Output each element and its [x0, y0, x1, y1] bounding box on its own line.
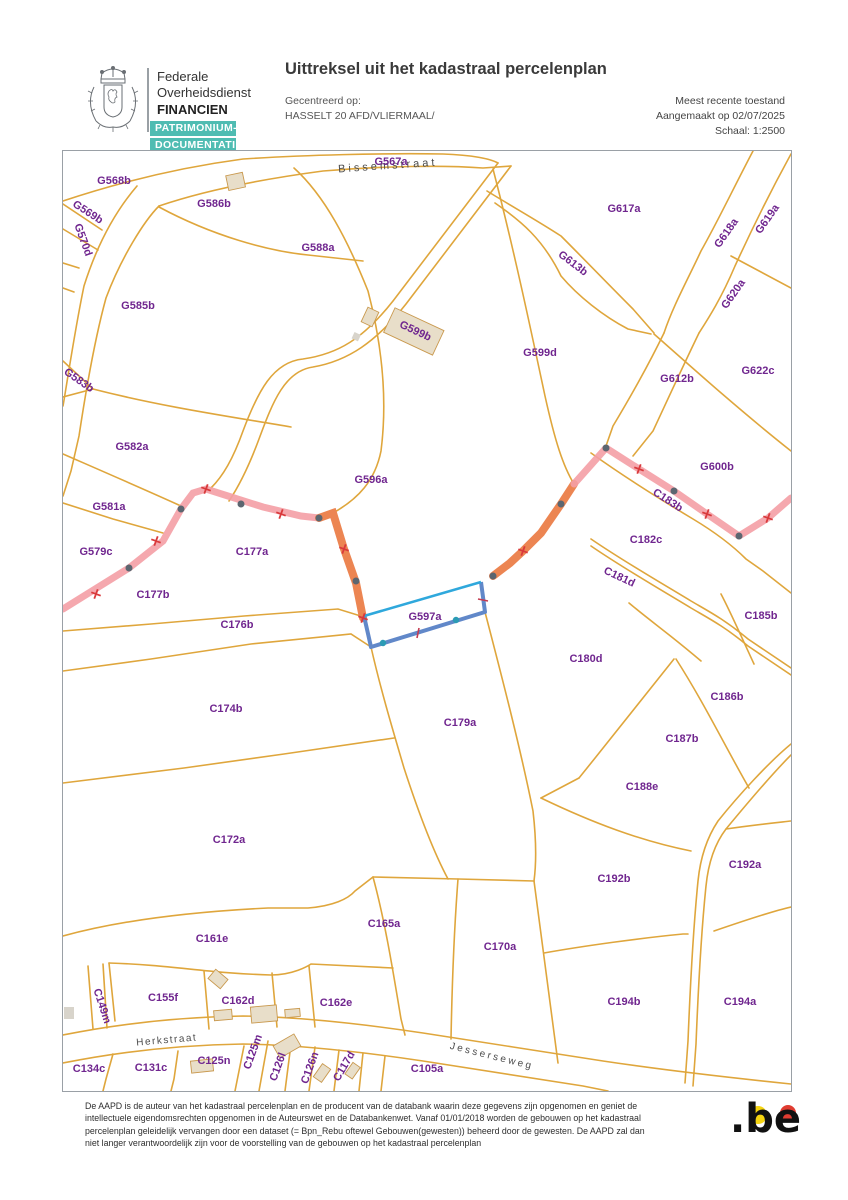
- created-date: Aangemaakt op 02/07/2025: [656, 109, 785, 124]
- badge-line1: PATRIMONIUM-: [150, 121, 236, 136]
- parcel-label-C125m: C125m: [241, 1033, 265, 1071]
- parcel-label-C177a: C177a: [236, 546, 269, 558]
- parcel-label-C176b: C176b: [220, 619, 253, 631]
- org-line2: Overheidsdienst: [157, 85, 251, 101]
- centered-on-label: Gecentreerd op:: [285, 94, 435, 109]
- parcel-label-G582a: G582a: [115, 441, 149, 453]
- parcel-label-C155f: C155f: [148, 992, 178, 1004]
- parcel-label-C172a: C172a: [213, 834, 246, 846]
- parcel-label-C165a: C165a: [368, 918, 401, 930]
- parcel-label-G579c: G579c: [79, 546, 112, 558]
- parcel-label-C185b: C185b: [744, 610, 777, 622]
- status-text: Meest recente toestand: [656, 94, 785, 109]
- cadastral-map[interactable]: BissemstraatHerkstraatJesserseweg G567aG…: [63, 151, 791, 1091]
- parcel-label-G568b: G568b: [97, 175, 131, 187]
- page-title: Uittreksel uit het kadastraal percelenpl…: [285, 60, 607, 79]
- org-line3: FINANCIEN: [157, 102, 251, 118]
- parcel-label-G570d: G570d: [71, 222, 94, 258]
- parcel-label-G600b: G600b: [700, 461, 734, 473]
- dot-be-logo: .be: [728, 1092, 808, 1148]
- centered-on-value: HASSELT 20 AFD/VLIERMAAL/: [285, 109, 435, 124]
- parcel-label-C174b: C174b: [209, 703, 242, 715]
- parcel-label-C177b: C177b: [136, 589, 169, 601]
- municipal-boundary: [63, 448, 791, 618]
- parcel-label-G597a[interactable]: G597a: [408, 611, 442, 623]
- centered-on-block: Gecentreerd op: HASSELT 20 AFD/VLIERMAAL…: [285, 94, 435, 124]
- parcel-label-C188e: C188e: [626, 781, 658, 793]
- parcel-label-C180d: C180d: [569, 653, 602, 665]
- parcel-label-C131c: C131c: [135, 1062, 167, 1074]
- parcel-label-G586b: G586b: [197, 198, 231, 210]
- parcel-label-G567a: G567a: [374, 156, 408, 168]
- parcel-label-C187b: C187b: [665, 733, 698, 745]
- parcel-label-G588a: G588a: [301, 242, 335, 254]
- header-divider: [147, 68, 149, 132]
- parcel-labels: G567aG568bG569bG570dG586bG588aG585bG617a…: [63, 156, 782, 1086]
- map-frame: BissemstraatHerkstraatJesserseweg G567aG…: [62, 150, 792, 1092]
- parcel-label-C125n: C125n: [197, 1055, 230, 1067]
- belgium-coat-of-arms-logo: [84, 63, 142, 135]
- parcel-label-C170a: C170a: [484, 941, 517, 953]
- org-name: Federale Overheidsdienst FINANCIEN: [157, 69, 251, 118]
- parcel-label-C105a: C105a: [411, 1063, 444, 1075]
- parcel-label-C162e: C162e: [320, 997, 352, 1009]
- parcel-label-C194a: C194a: [724, 996, 757, 1008]
- parcel-label-C192a: C192a: [729, 859, 762, 871]
- parcel-label-C194b: C194b: [607, 996, 640, 1008]
- svg-text:.be: .be: [730, 1096, 801, 1142]
- parcel-label-C162d: C162d: [221, 995, 254, 1007]
- org-line1: Federale: [157, 69, 251, 85]
- parcel-label-G617a: G617a: [607, 203, 641, 215]
- cadastral-extract-page: { "header": { "org_line1": "Federale", "…: [0, 0, 848, 1200]
- parcel-label-C192b: C192b: [597, 873, 630, 885]
- map-meta-block: Meest recente toestand Aangemaakt op 02/…: [656, 94, 785, 140]
- parcel-label-G612b: G612b: [660, 373, 694, 385]
- parcel-label-G585b: G585b: [121, 300, 155, 312]
- disclaimer-text: De AAPD is de auteur van het kadastraal …: [85, 1100, 645, 1149]
- parcel-label-C182c: C182c: [630, 534, 662, 546]
- parcel-label-C186b: C186b: [710, 691, 743, 703]
- parcel-label-C181d: C181d: [602, 565, 637, 590]
- parcel-label-G599d: G599d: [523, 347, 557, 359]
- parcel-label-C149m: C149m: [91, 987, 114, 1025]
- parcel-label-C126l: C126l: [268, 1051, 289, 1083]
- scale-text: Schaal: 1:2500: [656, 124, 785, 139]
- parcel-label-G596a: G596a: [354, 474, 388, 486]
- parcel-label-G622c: G622c: [741, 365, 774, 377]
- parcel-label-C161e: C161e: [196, 933, 228, 945]
- parcel-label-C134c: C134c: [73, 1063, 105, 1075]
- parcel-label-G620a: G620a: [719, 277, 748, 312]
- parcel-label-C179a: C179a: [444, 717, 477, 729]
- parcel-label-G581a: G581a: [92, 501, 126, 513]
